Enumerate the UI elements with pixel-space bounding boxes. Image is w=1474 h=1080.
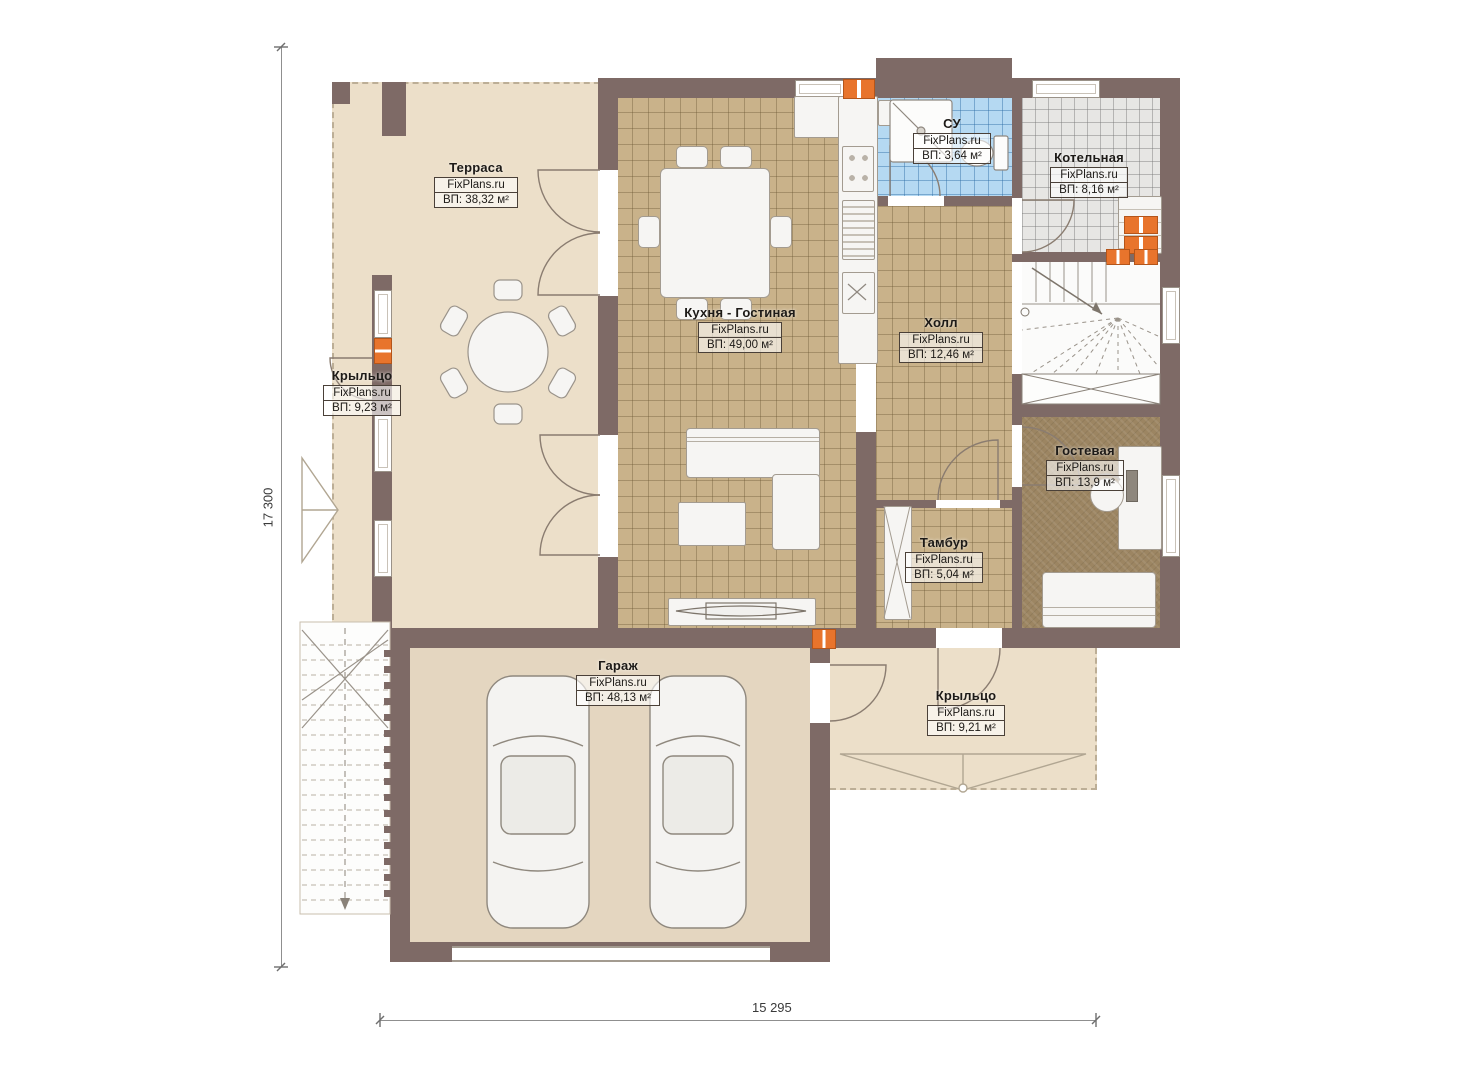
- floor-stairs: [1022, 262, 1160, 374]
- opening-front-door: [936, 628, 1002, 648]
- guest-sofa: [1042, 572, 1156, 628]
- pillar-terrace-top: [382, 82, 406, 136]
- dining-chair: [676, 298, 708, 320]
- floor-porch-bottom: [830, 648, 1097, 790]
- opening-terrace-door-top: [598, 170, 618, 296]
- dining-chair: [676, 146, 708, 168]
- tv-console: [668, 598, 816, 626]
- garage-door: [452, 946, 770, 962]
- vent-marker-icon: [1106, 249, 1130, 265]
- oven: [842, 200, 875, 260]
- opening-kitchen-hall: [856, 356, 876, 432]
- opening-guest-door: [1012, 425, 1022, 487]
- kitchen-sink: [842, 272, 875, 314]
- window-stairs-right: [1162, 287, 1180, 344]
- sofa-chaise: [772, 474, 820, 550]
- wall-bottom: [390, 628, 1180, 648]
- guest-desk: [1118, 446, 1162, 550]
- dining-chair: [770, 216, 792, 248]
- dining-table: [660, 168, 770, 298]
- opening-bathroom-door: [888, 196, 944, 206]
- dining-chair: [720, 298, 752, 320]
- coffee-table: [678, 502, 746, 546]
- pillar-terrace-corner: [332, 82, 350, 104]
- bathroom-sink: [878, 100, 896, 126]
- vent-marker-icon: [843, 79, 875, 99]
- window-porch-left-1: [374, 290, 392, 338]
- vestibule-wardrobe: [884, 506, 912, 620]
- wall-guest-top: [1022, 404, 1160, 417]
- dimension-height-label: 17 300: [260, 488, 275, 528]
- window-porch-left-2: [374, 415, 392, 472]
- vent-marker-icon: [1134, 249, 1158, 265]
- floor-garage: [410, 648, 810, 948]
- wall-top-bathroom-bump: [876, 58, 1012, 78]
- wall-garage-left: [390, 648, 410, 962]
- dining-chair: [638, 216, 660, 248]
- dimension-line-left: [281, 47, 282, 967]
- opening-hall-vestibule-door: [936, 500, 1000, 508]
- cooktop: [842, 146, 874, 192]
- sofa: [686, 428, 820, 478]
- window-boiler-top: [1032, 80, 1100, 98]
- vent-marker-icon: [374, 338, 392, 364]
- guest-monitor: [1126, 470, 1138, 502]
- opening-stairs: [1012, 262, 1022, 374]
- dining-chair: [720, 146, 752, 168]
- exterior-stairs: [300, 622, 391, 914]
- dimension-line-bottom: [380, 1020, 1096, 1021]
- vent-marker-icon: [812, 629, 836, 649]
- window-porch-left-3: [374, 520, 392, 577]
- window-guest-right: [1162, 475, 1180, 557]
- stairs-void-x: [1022, 374, 1160, 404]
- floor-bathroom: [876, 96, 1012, 196]
- vent-marker-icon: [1124, 216, 1158, 234]
- guest-office-chair: [1090, 478, 1124, 512]
- wall-right: [1160, 98, 1180, 648]
- opening-boiler-door: [1012, 198, 1022, 254]
- floor-plan: 17 300 15 295 Терраса FixPlans.ru ВП: 38…: [0, 0, 1474, 1080]
- opening-terrace-door-bottom: [598, 435, 618, 557]
- opening-garage-porch-door: [810, 663, 830, 723]
- dimension-width-label: 15 295: [752, 1000, 792, 1015]
